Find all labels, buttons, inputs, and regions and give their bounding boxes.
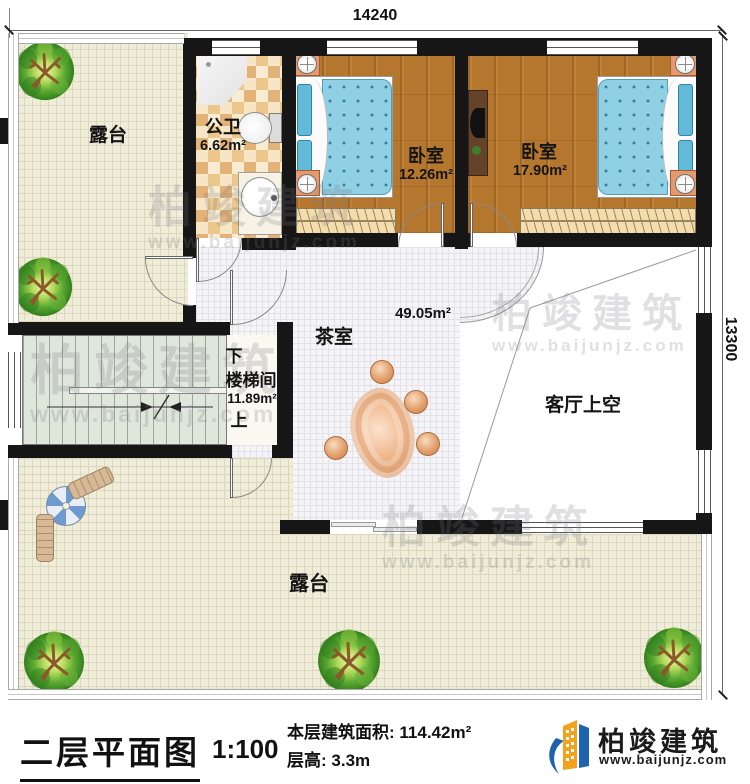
dimension-right-value: 13300 xyxy=(721,299,739,379)
wall xyxy=(643,520,712,534)
window xyxy=(522,522,643,533)
door-leaf xyxy=(145,256,193,259)
tree-icon xyxy=(642,626,706,690)
tree-icon xyxy=(14,40,76,102)
wall xyxy=(696,38,712,247)
door-leaf xyxy=(230,270,233,325)
floor-area-line: 本层建筑面积: 114.42m² xyxy=(287,718,471,743)
room-label-living-void: 客厅上空 xyxy=(540,396,626,416)
room-label-bathroom: 公卫 xyxy=(200,118,246,137)
lamp-icon xyxy=(675,54,695,74)
stair-handrail xyxy=(69,387,227,394)
drawing-title: 二层平面图 xyxy=(20,726,200,782)
brand-url: www.baijunjz.com xyxy=(599,752,727,767)
room-area-bedroom-right: 17.90m² xyxy=(510,164,570,179)
bed-mattress xyxy=(322,79,392,195)
dimension-tick xyxy=(718,690,728,700)
room-label-tea-room: 茶室 xyxy=(310,328,358,348)
tree-icon xyxy=(316,628,382,694)
door-leaf xyxy=(230,458,233,498)
room-label-bedroom-right: 卧室 xyxy=(518,143,560,162)
window xyxy=(8,352,21,428)
window xyxy=(698,450,711,513)
tree-icon xyxy=(12,256,74,318)
floor-area-value: 114.42m² xyxy=(399,723,471,742)
wardrobe xyxy=(296,208,396,234)
stool xyxy=(404,390,428,414)
wall xyxy=(696,313,712,450)
stool xyxy=(416,432,440,456)
bed-mattress xyxy=(598,79,668,195)
shower-drain-dot xyxy=(206,62,211,67)
terrace-railing xyxy=(8,689,712,700)
wall xyxy=(455,38,468,249)
wall xyxy=(517,233,696,247)
stool xyxy=(370,360,394,384)
dimension-top-line xyxy=(8,30,722,31)
room-area-tea-room: 49.05m² xyxy=(394,306,452,322)
sliding-door-panel xyxy=(331,522,376,527)
room-label-terrace-bottom: 露台 xyxy=(284,574,334,595)
floor-height-value: 3.3m xyxy=(331,751,370,770)
floor-area-label: 本层建筑面积: xyxy=(287,723,395,742)
wall xyxy=(282,38,296,250)
window xyxy=(212,40,260,55)
room-label-terrace-top: 露台 xyxy=(78,126,138,146)
stair-down-label: 下 xyxy=(222,348,246,366)
door-leaf xyxy=(470,203,473,247)
title-block: 二层平面图 1:100 本层建筑面积: 114.42m² 层高: 3.3m 柏竣… xyxy=(0,710,750,784)
drawing-scale: 1:100 xyxy=(212,734,279,765)
desk-plant xyxy=(472,146,481,155)
stairs xyxy=(22,335,227,445)
terrace-railing xyxy=(8,458,19,700)
wall xyxy=(441,233,472,247)
dimension-top-value: 14240 xyxy=(330,7,420,25)
pillow xyxy=(678,84,693,136)
floor-height-label: 层高: xyxy=(287,751,327,770)
nightstand xyxy=(670,170,698,196)
wall xyxy=(417,520,522,534)
terrace-railing xyxy=(701,534,712,700)
wall xyxy=(8,322,230,335)
wall xyxy=(280,520,330,534)
dimension-extension-line xyxy=(9,8,10,38)
door-leaf xyxy=(441,203,444,247)
window xyxy=(327,40,417,55)
pillow xyxy=(297,84,312,136)
stair-direction-arrows xyxy=(41,394,221,422)
lounge-chair xyxy=(36,514,54,562)
wall xyxy=(296,233,398,247)
nightstand xyxy=(292,170,320,196)
room-area-stairwell: 11.89m² xyxy=(224,392,280,406)
wall xyxy=(8,445,232,458)
tree-icon xyxy=(22,630,86,694)
stair-up-label: 上 xyxy=(227,412,251,430)
wall xyxy=(277,322,293,458)
umbrella-center-dot xyxy=(62,502,70,510)
terrace-railing xyxy=(8,33,19,323)
lamp-icon xyxy=(297,174,317,194)
wall xyxy=(183,38,196,258)
wall xyxy=(242,238,282,250)
door-leaf xyxy=(196,238,199,282)
room-label-bedroom-left: 卧室 xyxy=(405,147,447,166)
terrace-railing xyxy=(8,33,184,44)
room-area-bathroom: 6.62m² xyxy=(197,139,249,154)
floorplan-canvas: 柏竣建筑 www.baijunjz.com 柏竣建筑 www.baijunjz.… xyxy=(0,0,750,784)
room-area-bedroom-left: 12.26m² xyxy=(397,168,455,183)
wardrobe xyxy=(520,208,696,234)
sliding-door-panel xyxy=(373,527,417,532)
sink-faucet-dot xyxy=(271,195,277,201)
floor-height-line: 层高: 3.3m xyxy=(287,746,370,771)
wall xyxy=(272,445,293,458)
lamp-icon xyxy=(675,174,695,194)
computer-monitor xyxy=(470,108,485,138)
brand-logo-icon xyxy=(545,716,593,776)
window xyxy=(698,247,711,313)
room-label-stairwell: 楼梯间 xyxy=(222,372,280,390)
lamp-icon xyxy=(297,54,317,74)
stool xyxy=(324,436,348,460)
window xyxy=(547,40,638,55)
